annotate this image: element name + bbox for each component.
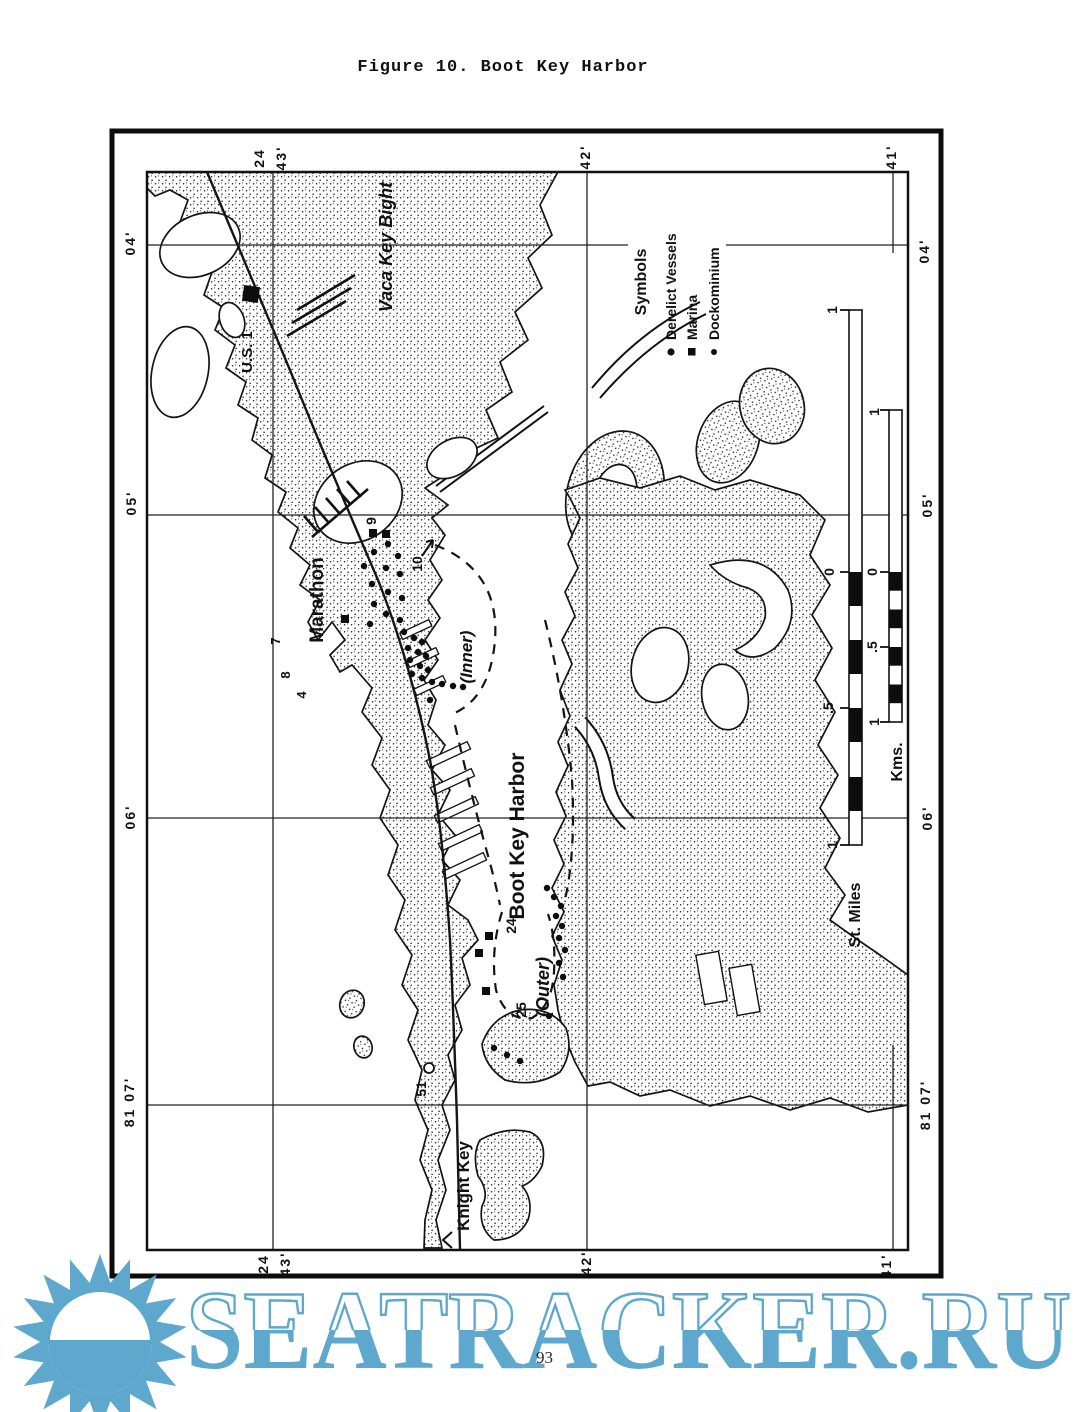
lon-label: 05' (919, 493, 935, 518)
site-number: 25 (513, 1002, 529, 1018)
legend-item-label: Dockominium (706, 247, 722, 340)
lon-label: 05' (123, 491, 139, 516)
label-knight-key: Knight Key (454, 1141, 473, 1231)
lon-label: 06' (122, 805, 138, 830)
kms-tick: 0 (864, 568, 880, 576)
lat-label: 43' (273, 146, 289, 171)
small-island (336, 987, 368, 1022)
miles-scale-label: St. Miles (847, 882, 864, 947)
legend-item-label: Marina (684, 295, 700, 340)
map-land-group (143, 168, 908, 1250)
site-number: 51 (413, 1081, 429, 1097)
lon-label: 06' (919, 806, 935, 831)
miles-tick: .5 (820, 702, 836, 714)
lagoon (143, 321, 217, 423)
label-vaca-key-bight: Vaca Key Bight (376, 181, 396, 312)
vaca-key-land (147, 168, 560, 1248)
kms-scale-label: Kms. (889, 742, 906, 781)
site-number: 8 (278, 671, 293, 678)
derelict-vessel-symbol (667, 348, 674, 355)
lat-label: 24 (251, 148, 267, 168)
lat-label: 41' (883, 145, 899, 170)
miles-tick: 0 (821, 568, 837, 576)
label-marathon: Marathon (307, 557, 328, 643)
lat-label: 42' (577, 145, 593, 170)
document-page: Figure 10. Boot Key Harbor (0, 0, 1080, 1412)
miles-tick: 1 (824, 841, 840, 849)
site-number: 24 (503, 918, 519, 934)
label-boot-key-harbor: Boot Key Harbor (506, 753, 529, 920)
lon-label: 81 07' (121, 1077, 137, 1127)
label-inner: (Inner) (457, 630, 476, 683)
map-figure: 1 0 .5 1 1 0 .5 1 St. Miles Kms. Symbols… (0, 0, 1080, 1412)
miles-tick: 1 (824, 306, 840, 314)
kms-tick: 1 (866, 408, 882, 416)
site-number: 4 (294, 691, 309, 699)
site-number: 10 (409, 556, 425, 572)
legend-header: Symbols (633, 249, 650, 316)
page-number: 93 (536, 1348, 553, 1368)
lon-label: 04' (916, 239, 932, 264)
legend-item-label: Derelict Vessels (663, 233, 679, 340)
legend: Symbols Derelict Vessels Marina Dockomin… (633, 233, 722, 355)
site-51-marker (424, 1063, 434, 1073)
site-number: 7 (268, 637, 283, 644)
label-outer: (Outer) (533, 957, 553, 1017)
marina-symbol (688, 348, 696, 356)
kms-tick: .5 (864, 641, 880, 653)
dockominium-symbol (711, 349, 717, 355)
knight-key-arrow (443, 1232, 452, 1248)
lon-label: 81 07' (917, 1080, 933, 1130)
lon-label: 04' (122, 231, 138, 256)
knight-key-east-island (475, 1130, 543, 1240)
site-number: 9 (363, 517, 379, 525)
small-island (351, 1034, 374, 1060)
kms-tick: 1 (866, 718, 882, 726)
label-us1: U.S. 1 (239, 331, 256, 373)
